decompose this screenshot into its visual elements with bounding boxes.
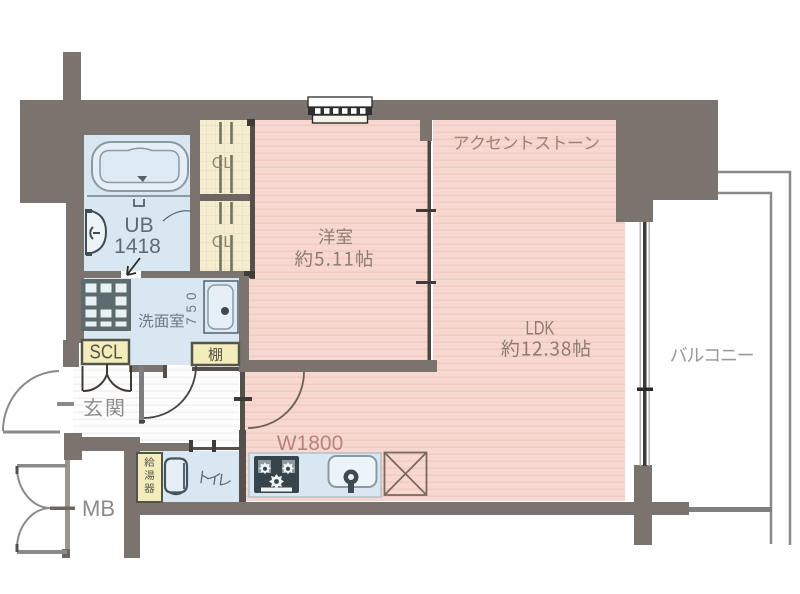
svg-text:1418: 1418 (114, 235, 161, 258)
svg-text:750: 750 (184, 287, 199, 325)
svg-text:MB: MB (82, 496, 115, 521)
svg-text:UB: UB (124, 214, 153, 237)
svg-text:SCL: SCL (90, 342, 123, 364)
svg-text:CL: CL (212, 234, 233, 251)
svg-text:LDK: LDK (526, 318, 555, 340)
svg-text:W1800: W1800 (277, 432, 344, 455)
svg-text:CL: CL (212, 155, 233, 172)
